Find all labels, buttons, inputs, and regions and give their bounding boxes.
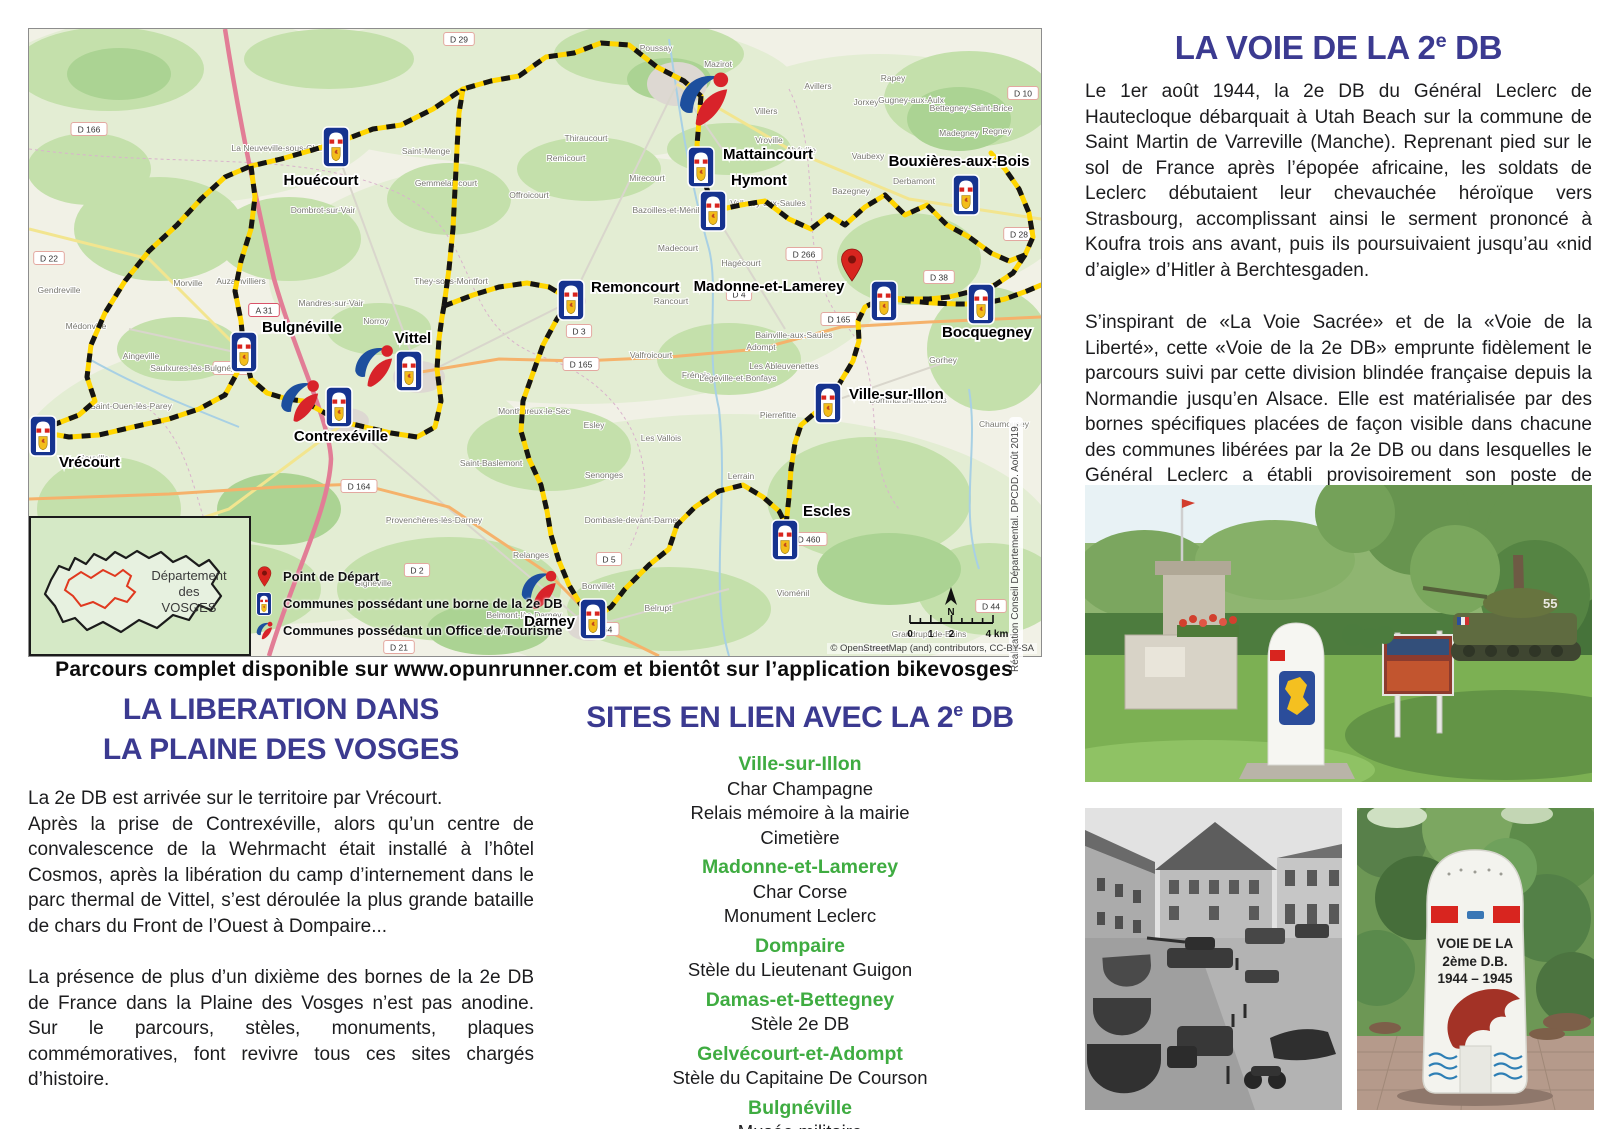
liberation-title-line2: LA PLAINE DES VOSGES — [28, 730, 534, 770]
road-label-text: D 460 — [798, 535, 821, 545]
inset-label-line1: Département — [151, 568, 227, 583]
map-village-label: Poussay — [640, 43, 673, 53]
map-village-label: Relanges — [513, 550, 549, 560]
map-village-label: Bazoilles-et-Ménil — [632, 205, 699, 215]
map-village-label: Derbamont — [893, 176, 936, 186]
borne-marker — [231, 332, 257, 372]
map-town-label: Vittel — [395, 330, 431, 347]
sites-title-end: DB — [963, 701, 1014, 734]
borne-marker — [700, 191, 726, 231]
brochure-page: D 29D 10D 166D 22A 31D 164D 164D 5D 3D 1… — [0, 0, 1598, 1129]
road-label-text: D 165 — [570, 360, 593, 370]
vosges-inset-map: Département des VOSGES — [29, 516, 251, 656]
road-label-text: D 165 — [828, 315, 851, 325]
map-village-label: Les Vallois — [641, 433, 681, 443]
voie-title: LA VOIE DE LA 2e DB — [1085, 22, 1592, 67]
voie-paragraph-1: Le 1er août 1944, la 2e DB du Général Le… — [1085, 79, 1592, 283]
borne-marker — [772, 520, 798, 560]
borne-marker — [396, 351, 422, 391]
borne-marker — [323, 127, 349, 167]
voie-title-end: DB — [1446, 29, 1502, 66]
borne-marker — [953, 175, 979, 215]
map-village-label: Villers — [755, 106, 778, 116]
site-town: Damas-et-Bettegney — [560, 988, 1040, 1013]
map-village-label: Madegney — [939, 128, 979, 138]
map-village-label: Jorxey — [853, 97, 879, 107]
liberation-title: LA LIBERATION DANS LA PLAINE DES VOSGES — [28, 690, 534, 770]
sites-title-sup: e — [953, 700, 963, 720]
site-item: Relais mémoire à la mairie — [560, 801, 1040, 826]
site-item: Stèle du Lieutenant Guigon — [560, 958, 1040, 983]
map-village-label: Vioménil — [777, 588, 810, 598]
map-credit-vertical: Réalisation Conseil Départemental. DPCDD… — [1009, 417, 1023, 675]
map-village-label: Adompt — [746, 342, 776, 352]
borne-marker — [871, 281, 897, 321]
map-village-label: Bainville-aux-Saules — [755, 330, 832, 340]
map-village-label: Gorhey — [929, 355, 958, 365]
voie-paragraph-2: S’inspirant de «La Voie Sacrée» et de la… — [1085, 310, 1592, 514]
map-credit-osm: © OpenStreetMap (and) contributors, CC-B… — [827, 643, 1037, 654]
road-label-text: D 22 — [40, 254, 58, 264]
map-village-label: Gendreville — [38, 285, 81, 295]
map-village-label: Avillers — [804, 81, 831, 91]
site-town: Dompaire — [560, 934, 1040, 959]
map-town-label: Escles — [803, 503, 851, 520]
site-item: Stèle 2e DB — [560, 1012, 1040, 1037]
legend-label: Communes possédant une borne de la 2e DB — [283, 596, 563, 611]
borne-marker — [968, 284, 994, 324]
map-village-label: Auzainvilliers — [216, 276, 266, 286]
borne-text-line3: 1944 – 1945 — [1437, 971, 1513, 986]
map-village-label: Hagécourt — [721, 258, 761, 268]
map-village-label: Gemmelaincourt — [415, 178, 478, 188]
map-village-label: Bettegney-Saint-Brice — [930, 103, 1013, 113]
liberation-paragraph-1: La 2e DB est arrivée sur le territoire p… — [28, 786, 534, 939]
map-town-label: Ville-sur-Illon — [849, 386, 944, 403]
map-village-label: Mandres-sur-Vair — [298, 298, 363, 308]
road-label-text: D 10 — [1014, 89, 1032, 99]
borne-marker — [326, 387, 352, 427]
parcours-banner: Parcours complet disponible sur www.opun… — [28, 658, 1040, 682]
scale-tick: 4 km — [986, 629, 1009, 640]
site-town: Bulgnéville — [560, 1096, 1040, 1121]
map-village-label: Esley — [584, 420, 606, 430]
site-item: Cimetière — [560, 826, 1040, 851]
road-label-text: D 266 — [793, 250, 816, 260]
road-label-text: A 31 — [255, 306, 272, 316]
map-village-label: Saint-Menge — [402, 146, 450, 156]
borne-text-line2: 2ème D.B. — [1442, 954, 1507, 969]
site-item: Char Corse — [560, 880, 1040, 905]
map-village-label: Pierrefitte — [760, 410, 797, 420]
photo-memorial-site: 55 — [1085, 485, 1592, 782]
scale-tick: 2 — [949, 629, 955, 640]
photo-borne-closeup: VOIE DE LA 2ème D.B. 1944 – 1945 — [1357, 808, 1594, 1110]
scale-tick: 1 — [928, 629, 934, 640]
map-village-label: Rancourt — [654, 296, 689, 306]
voie-section: LA VOIE DE LA 2e DB Le 1er août 1944, la… — [1085, 22, 1592, 557]
road-label-text: D 3 — [572, 327, 586, 337]
map-village-label: Les Ableuvenettes — [749, 361, 818, 371]
map-village-label: Monthureux-le-Sec — [498, 406, 571, 416]
map-village-label: Senonges — [585, 470, 623, 480]
map-village-label: Saint-Ouen-lès-Parey — [90, 401, 172, 411]
map-town-label: Madonne-et-Lamerey — [694, 278, 846, 295]
map-village-label: Dombrot-sur-Vair — [291, 205, 356, 215]
site-item: Musée militaire — [560, 1120, 1040, 1129]
sites-section: SITES EN LIEN AVEC LA 2e DB Ville-sur-Il… — [560, 690, 1040, 1129]
site-item: Stèle du Capitaine De Courson — [560, 1066, 1040, 1091]
legend-row-depart: Point de Départ — [251, 563, 691, 590]
road-label-text: D 21 — [390, 643, 408, 653]
map-town-label: Bouxières-aux-Bois — [889, 153, 1030, 170]
map-town-label: Hymont — [731, 172, 787, 189]
legend-row-office-tourisme: Communes possédant un Office de Tourisme — [251, 617, 691, 644]
borne-marker — [815, 383, 841, 423]
borne-text-line1: VOIE DE LA — [1437, 936, 1514, 951]
site-item: Monument Leclerc — [560, 904, 1040, 929]
map-town-label: Contrexéville — [294, 428, 388, 445]
borne-marker — [558, 280, 584, 320]
site-item: Char Champagne — [560, 777, 1040, 802]
map-village-label: Valfroicourt — [630, 350, 673, 360]
map-village-label: Mazirot — [704, 59, 733, 69]
voie-title-main: LA VOIE DE LA 2 — [1175, 29, 1436, 66]
start-pin-icon — [251, 566, 277, 587]
borne-marker — [30, 416, 56, 456]
map-village-label: Rapey — [881, 73, 906, 83]
map-village-label: Bazegney — [832, 186, 871, 196]
sites-title-main: SITES EN LIEN AVEC LA 2 — [586, 701, 953, 734]
site-town: Ville-sur-Illon — [560, 752, 1040, 777]
map-village-label: They-sous-Montfort — [414, 276, 488, 286]
map-village-label: Vroville — [755, 135, 783, 145]
borne-icon — [251, 592, 277, 616]
legend-label: Point de Départ — [283, 569, 379, 584]
map-town-label: Mattaincourt — [723, 146, 813, 163]
road-label-text: D 164 — [348, 482, 371, 492]
liberation-section: LA LIBERATION DANS LA PLAINE DES VOSGES … — [28, 690, 534, 1093]
route-map: D 29D 10D 166D 22A 31D 164D 164D 5D 3D 1… — [28, 28, 1042, 657]
borne-marker — [688, 147, 714, 187]
road-label-text: D 38 — [930, 273, 948, 283]
map-village-label: Morville — [173, 278, 203, 288]
liberation-title-line1: LA LIBERATION DANS — [28, 690, 534, 730]
map-town-label: Bocquegney — [942, 324, 1033, 341]
site-town: Madonne-et-Lamerey — [560, 855, 1040, 880]
map-village-label: Provenchères-lès-Darney — [386, 515, 483, 525]
legend-label: Communes possédant un Office de Tourisme — [283, 623, 562, 638]
map-town-label: Remoncourt — [591, 279, 679, 296]
map-village-label: Aingeville — [123, 351, 160, 361]
map-village-label: Saint-Baslemont — [460, 458, 523, 468]
map-village-label: Vaubexy — [852, 151, 885, 161]
map-town-label: Vrécourt — [59, 454, 120, 471]
liberation-para2-text: Après la prise de Contrexéville, alors q… — [28, 814, 534, 937]
office-tourisme-icon — [251, 620, 277, 641]
voie-title-sup: e — [1436, 30, 1447, 52]
sites-list: Ville-sur-IllonChar ChampagneRelais mémo… — [560, 752, 1040, 1129]
vosges-outline: Département des VOSGES — [31, 518, 249, 654]
map-town-label: Houécourt — [284, 172, 359, 189]
sites-title: SITES EN LIEN AVEC LA 2e DB — [560, 690, 1040, 738]
liberation-para1-text: La 2e DB est arrivée sur le territoire p… — [28, 788, 442, 809]
tank-number: 55 — [1543, 596, 1557, 611]
map-village-label: Remicourt — [547, 153, 586, 163]
map-legend: Point de Départ Communes possédant une b… — [251, 563, 691, 644]
map-village-label: Regney — [982, 126, 1012, 136]
map-village-label: Norroy — [363, 316, 389, 326]
legend-row-borne: Communes possédant une borne de la 2e DB — [251, 590, 691, 617]
site-town: Gelvécourt-et-Adompt — [560, 1042, 1040, 1067]
map-village-label: Mirecourt — [629, 173, 665, 183]
road-label-text: D 28 — [1010, 230, 1028, 240]
map-village-label: Thiraucourt — [565, 133, 609, 143]
road-label-text: D 29 — [450, 35, 468, 45]
map-village-label: Madecourt — [658, 243, 699, 253]
map-village-label: Offroicourt — [509, 190, 549, 200]
inset-label-line3: VOSGES — [162, 600, 217, 615]
map-town-label: Bulgnéville — [262, 319, 342, 336]
scale-tick: 0 — [907, 629, 913, 640]
inset-label-line2: des — [179, 584, 200, 599]
map-village-label: Légéville-et-Bonfays — [699, 373, 776, 383]
map-village-label: Dombasle-devant-Darney — [585, 515, 683, 525]
map-village-label: Lerrain — [728, 471, 755, 481]
road-label-text: D 166 — [78, 125, 101, 135]
photo-historic-liberation — [1085, 808, 1342, 1110]
liberation-paragraph-2: La présence de plus d’un dixième des bor… — [28, 965, 534, 1093]
